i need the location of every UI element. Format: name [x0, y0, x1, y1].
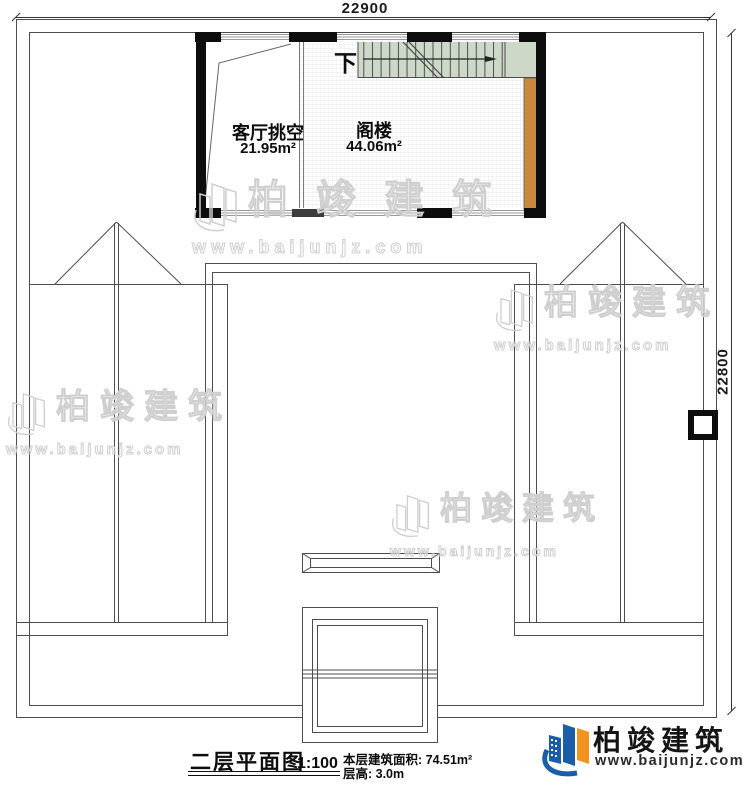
watermark-logo-icon — [390, 492, 430, 538]
company-logo-icon — [541, 722, 593, 777]
watermark: 柏竣建筑 www.baijunjz.com — [6, 390, 232, 457]
watermark: 柏竣建筑 www.baijunjz.com — [192, 180, 520, 256]
company-logo: 柏竣建筑 www.baijunjz.com — [541, 719, 746, 779]
dimension-right-label: 22800 — [715, 332, 732, 412]
chimney — [691, 413, 715, 437]
watermark-site-text: www.baijunjz.com — [494, 338, 720, 353]
drawing-scale: 1:100 — [297, 755, 338, 773]
dimension-top-label: 22900 — [320, 0, 410, 17]
stair-down-label: 下 — [334, 44, 357, 78]
watermark-brand-text: 柏竣建筑 — [56, 390, 232, 424]
watermark-brand-text: 柏竣建筑 — [440, 492, 604, 524]
company-site-text: www.baijunjz.com — [595, 753, 744, 769]
watermark: 柏竣建筑 www.baijunjz.com — [494, 286, 720, 353]
floor-height-text: 层高: 3.0m — [343, 763, 404, 782]
watermark-brand-text: 柏竣建筑 — [544, 286, 720, 320]
watermark-brand-text: 柏竣建筑 — [248, 180, 520, 220]
staircase-treads — [358, 42, 505, 78]
watermark-logo-icon — [494, 286, 534, 332]
floor-plan-canvas: 柏竣建筑 www.baijunjz.com 柏竣建筑 www.baijunjz.… — [0, 0, 750, 787]
watermark-logo-icon — [6, 390, 46, 436]
watermark-site-text: www.baijunjz.com — [192, 238, 520, 256]
watermark-site-text: www.baijunjz.com — [6, 442, 232, 457]
balcony-wood-strip — [524, 78, 537, 211]
porch-roof — [303, 608, 438, 743]
room-area-attic: 44.06m² — [304, 138, 444, 155]
watermark-site-text: www.baijunjz.com — [390, 544, 604, 558]
watermark: 柏竣建筑 www.baijunjz.com — [390, 492, 604, 558]
watermark-logo-icon — [192, 180, 238, 232]
